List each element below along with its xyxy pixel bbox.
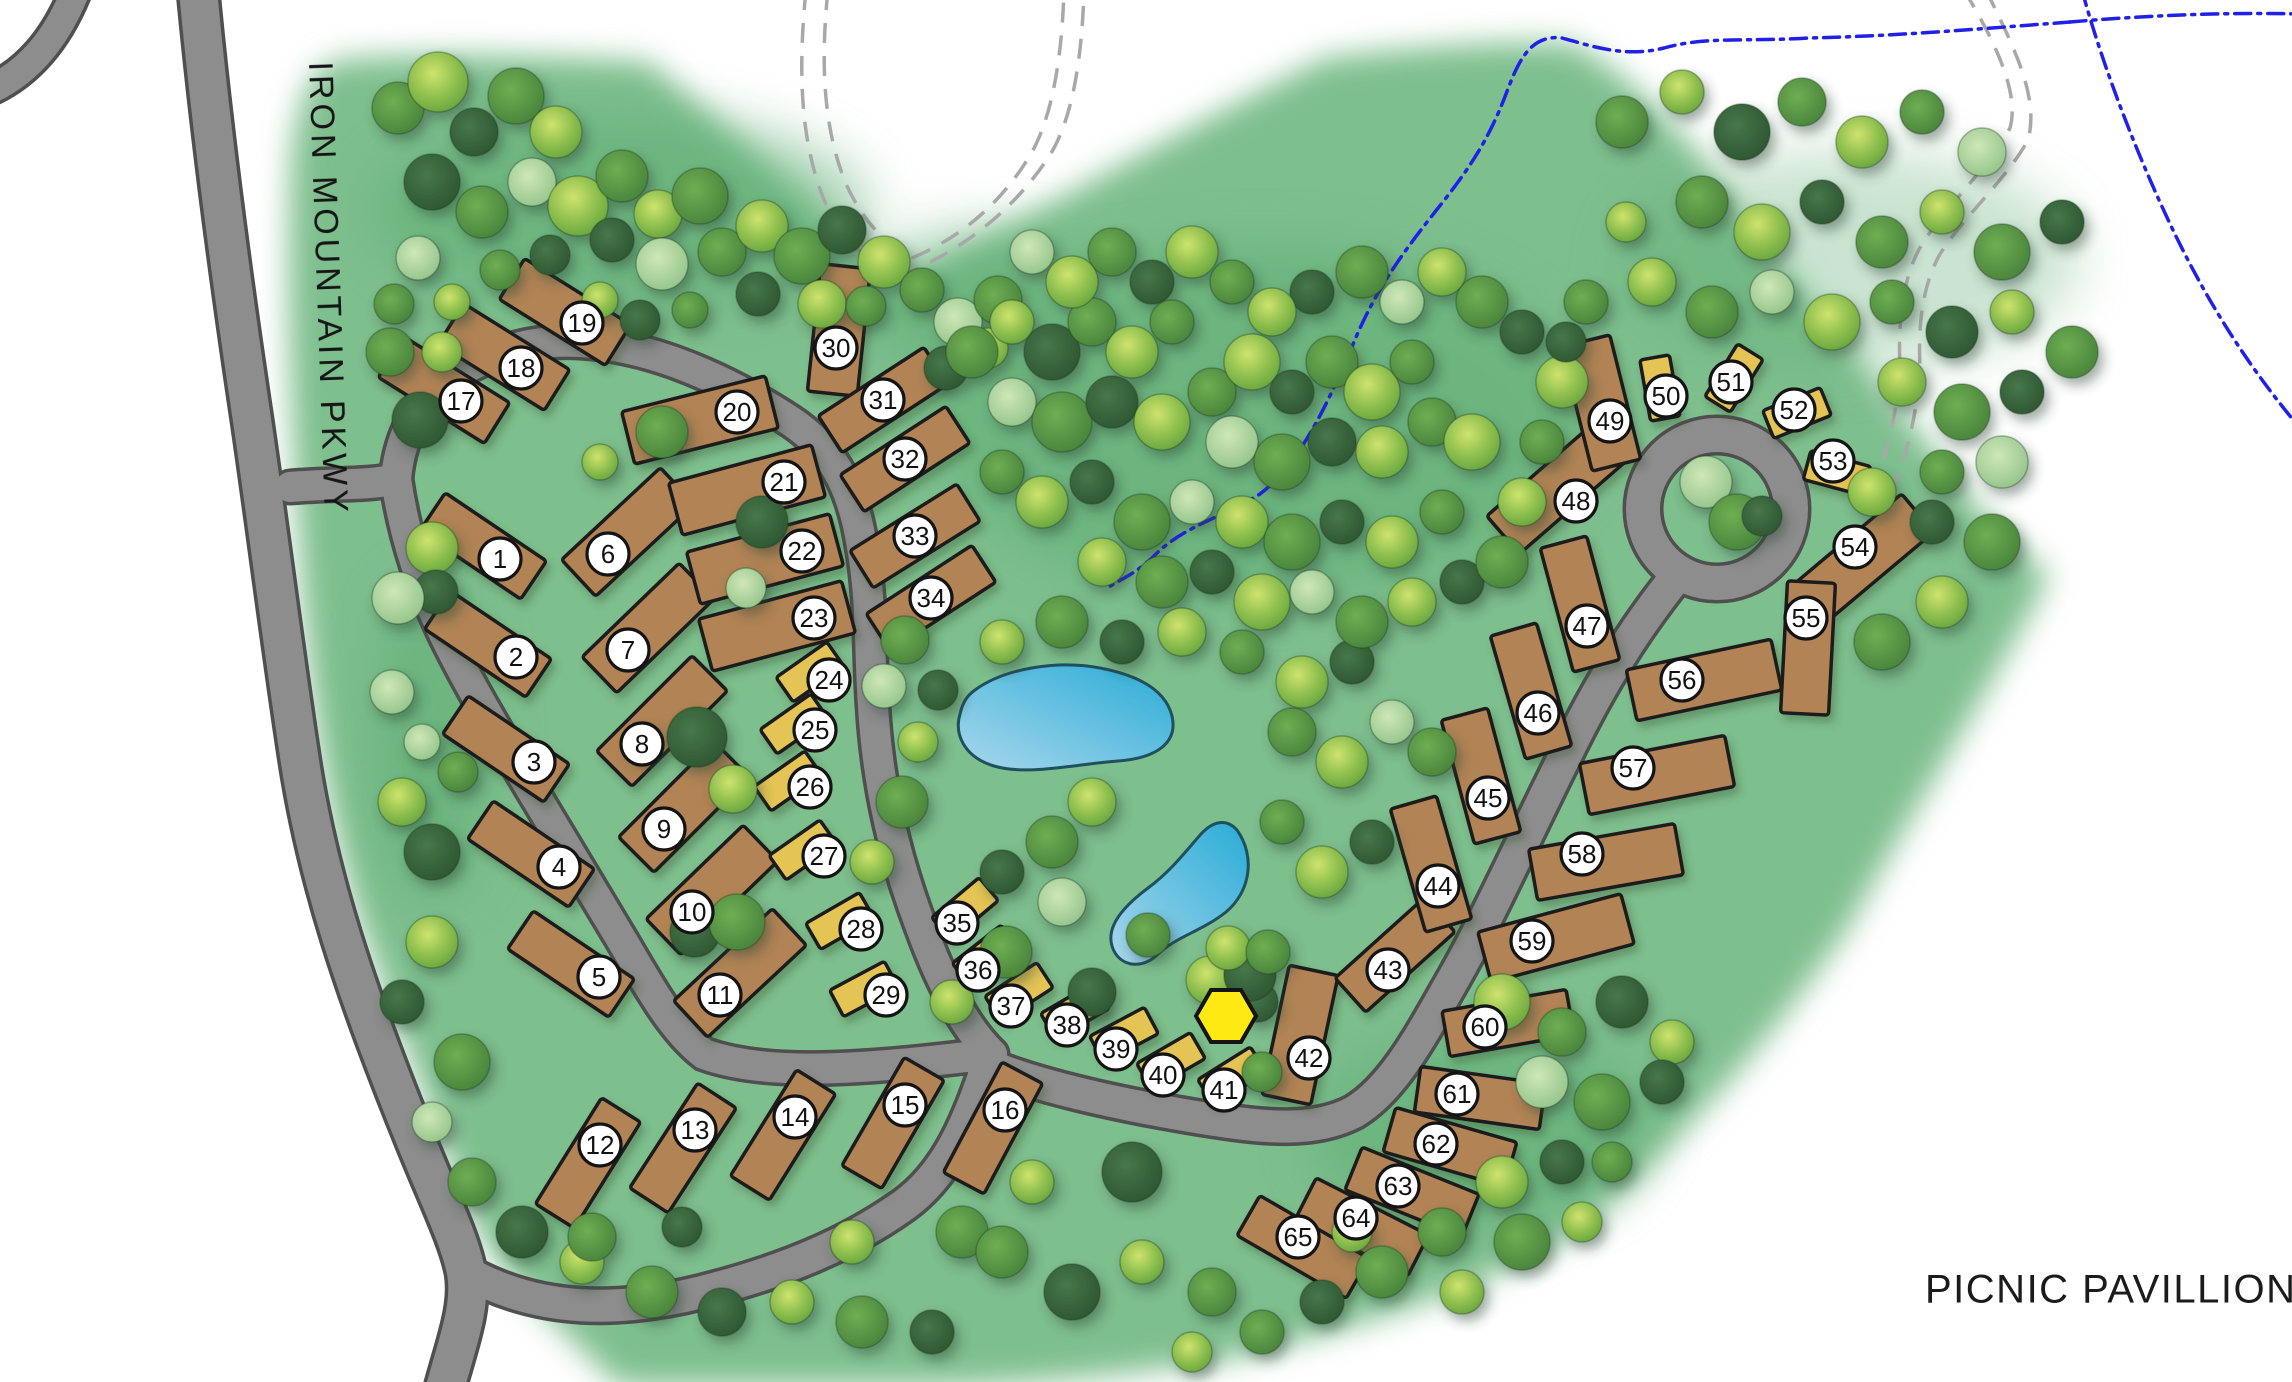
legend-label: PICNIC PAVILLION: [1925, 1267, 2292, 1311]
tree-icon: [918, 670, 958, 710]
lot-number: 52: [1780, 395, 1809, 425]
lot-number: 17: [447, 386, 476, 416]
lot-number-marker: 37: [990, 985, 1032, 1027]
tree-icon: [1366, 516, 1418, 568]
lot-number: 46: [1524, 698, 1553, 728]
lot-number: 6: [601, 539, 615, 569]
tree-icon: [1344, 364, 1400, 420]
tree-icon: [1916, 576, 1968, 628]
tree-icon: [1206, 416, 1258, 468]
tree-icon: [1106, 326, 1158, 378]
lot-number-marker: 3: [513, 741, 555, 783]
tree-icon: [406, 916, 458, 968]
tree-icon: [1320, 500, 1364, 544]
tree-icon: [1336, 596, 1388, 648]
lot-number: 24: [815, 665, 844, 695]
lot-number-marker: 7: [607, 629, 649, 671]
lot-number: 16: [991, 1095, 1020, 1125]
tree-icon: [1120, 1240, 1164, 1284]
tree-icon: [1920, 190, 1964, 234]
lot-number-marker: 28: [840, 908, 882, 950]
lot-number-marker: 42: [1288, 1037, 1330, 1079]
lot-number: 14: [781, 1102, 810, 1132]
lot-number-marker: 30: [815, 327, 857, 369]
lot-number-marker: 10: [671, 891, 713, 933]
lot-number-marker: 17: [440, 380, 482, 422]
lot-number-marker: 22: [781, 530, 823, 572]
tree-icon: [1628, 258, 1676, 306]
lot-number-marker: 8: [621, 723, 663, 765]
lot-number: 44: [1424, 871, 1453, 901]
lot-number-marker: 39: [1095, 1028, 1137, 1070]
tree-icon: [450, 108, 498, 156]
tree-icon: [448, 1158, 496, 1206]
lot-number-marker: 27: [803, 835, 845, 877]
lot-number: 20: [723, 397, 752, 427]
tree-icon: [1134, 394, 1190, 450]
tree-icon: [1126, 913, 1170, 957]
lot-number: 62: [1422, 1129, 1451, 1159]
tree-icon: [1216, 496, 1268, 548]
tree-icon: [698, 1288, 746, 1336]
tree-icon: [480, 250, 520, 290]
lot-number: 21: [770, 467, 799, 497]
lot-number-marker: 46: [1517, 692, 1559, 734]
tree-icon: [456, 186, 508, 238]
lot-number: 27: [810, 841, 839, 871]
tree-icon: [1224, 334, 1280, 390]
lot-number: 1: [493, 544, 507, 574]
lot-number-marker: 52: [1773, 389, 1815, 431]
lot-number: 49: [1596, 406, 1625, 436]
tree-icon: [709, 765, 757, 813]
tree-icon: [1380, 280, 1424, 324]
lot-number-marker: 44: [1417, 865, 1459, 907]
lot-number-marker: 31: [862, 379, 904, 421]
lot-number: 26: [796, 772, 825, 802]
lot-number-marker: 16: [984, 1089, 1026, 1131]
tree-icon: [1268, 708, 1316, 756]
tree-icon: [1444, 414, 1500, 470]
lot-number: 12: [586, 1130, 615, 1160]
lot-number: 30: [822, 333, 851, 363]
lot-number-marker: 47: [1566, 605, 1608, 647]
tree-icon: [1100, 620, 1144, 664]
tree-icon: [404, 154, 460, 210]
tree-icon: [2000, 370, 2044, 414]
lot-number-marker: 14: [774, 1096, 816, 1138]
tree-icon: [709, 894, 765, 950]
tree-icon: [1234, 574, 1290, 630]
tree-icon: [988, 378, 1036, 426]
lot-number: 34: [917, 583, 946, 613]
tree-icon: [1370, 700, 1414, 744]
tree-icon: [1856, 216, 1908, 268]
lot-number: 32: [891, 444, 920, 474]
tree-icon: [818, 206, 866, 254]
lot-number: 2: [509, 642, 523, 672]
tree-icon: [1804, 294, 1860, 350]
lot-number: 11: [707, 980, 734, 1010]
pavilion-hexagon-icon: [1196, 990, 1256, 1042]
tree-icon: [1170, 480, 1214, 524]
tree-icon: [1316, 736, 1368, 788]
tree-icon: [1010, 1160, 1054, 1204]
tree-icon: [1270, 370, 1314, 414]
tree-icon: [898, 722, 938, 762]
tree-icon: [1734, 204, 1790, 260]
lot-number-marker: 53: [1812, 440, 1854, 482]
tree-icon: [1958, 128, 2006, 176]
lot-number: 8: [635, 729, 649, 759]
tree-icon: [1650, 1020, 1694, 1064]
tree-icon: [1036, 596, 1088, 648]
lot-number: 9: [657, 814, 671, 844]
tree-icon: [1836, 116, 1888, 168]
lot-number: 58: [1568, 839, 1597, 869]
tree-icon: [1540, 1140, 1584, 1184]
lot-number: 10: [678, 897, 707, 927]
lot-number: 13: [681, 1115, 710, 1145]
tree-icon: [370, 670, 414, 714]
tree-icon: [1536, 356, 1588, 408]
lot-number: 65: [1284, 1222, 1313, 1252]
lot-number: 5: [592, 962, 606, 992]
tree-icon: [672, 292, 708, 328]
tree-icon: [1910, 500, 1954, 544]
lot-number-marker: 2: [495, 636, 537, 678]
tree-icon: [1206, 926, 1250, 970]
tree-icon: [582, 444, 618, 480]
lot-number: 22: [788, 536, 817, 566]
lot-number: 61: [1443, 1079, 1472, 1109]
lot-number-marker: 40: [1142, 1054, 1184, 1096]
tree-icon: [1418, 1208, 1466, 1256]
tree-icon: [1260, 800, 1304, 844]
tree-icon: [1476, 536, 1528, 588]
lot-number-marker: 11: [699, 974, 741, 1016]
tree-icon: [620, 300, 660, 340]
tree-icon: [1068, 778, 1116, 826]
lot-number: 41: [1210, 1075, 1239, 1105]
tree-icon: [1592, 1142, 1632, 1182]
tree-icon: [434, 284, 470, 320]
tree-icon: [1878, 358, 1926, 406]
lot-number: 19: [568, 308, 597, 338]
tree-icon: [1172, 1332, 1212, 1372]
lot-number: 54: [1841, 532, 1870, 562]
tree-icon: [850, 840, 894, 884]
lot-number-marker: 9: [643, 808, 685, 850]
tree-icon: [1640, 1060, 1684, 1104]
lot-number-marker: 19: [561, 302, 603, 344]
lot-number-marker: 65: [1277, 1216, 1319, 1258]
tree-icon: [881, 616, 929, 664]
tree-icon: [530, 106, 582, 158]
tree-icon: [1296, 846, 1348, 898]
tree-icon: [1520, 420, 1564, 464]
tree-icon: [1276, 656, 1328, 708]
lot-number-marker: 34: [910, 577, 952, 619]
tree-icon: [980, 850, 1024, 894]
tree-icon: [1964, 514, 2020, 570]
tree-icon: [1900, 90, 1944, 134]
tree-icon: [422, 332, 462, 372]
lot-number: 4: [552, 852, 566, 882]
lot-number: 29: [872, 980, 901, 1010]
tree-icon: [1136, 556, 1188, 608]
lot-number-marker: 57: [1612, 747, 1654, 789]
tree-icon: [1562, 1202, 1602, 1242]
lot-number-marker: 55: [1785, 597, 1827, 639]
lot-number: 45: [1474, 783, 1503, 813]
lot-number-marker: 38: [1046, 1004, 1088, 1046]
tree-icon: [1264, 514, 1320, 570]
site-plan-map: 1234567891011121314151617181920212223242…: [0, 0, 2292, 1382]
tree-icon: [1308, 418, 1356, 466]
lot-number: 31: [869, 385, 898, 415]
tree-icon: [1800, 180, 1844, 224]
tree-icon: [1390, 340, 1434, 384]
tree-icon: [770, 1280, 814, 1324]
lot-number-marker: 4: [538, 846, 580, 888]
tree-icon: [1676, 176, 1728, 228]
tree-icon: [1974, 224, 2030, 280]
lot-number: 50: [1652, 381, 1681, 411]
tree-icon: [380, 980, 424, 1024]
lot-number: 25: [801, 715, 830, 745]
tree-icon: [830, 1220, 874, 1264]
tree-icon: [1606, 202, 1646, 242]
lot-number-marker: 1: [479, 538, 521, 580]
lot-number: 43: [1374, 955, 1403, 985]
tree-icon: [1848, 468, 1896, 516]
tree-icon: [1248, 288, 1296, 336]
tree-icon: [404, 824, 460, 880]
lot-number: 37: [997, 991, 1026, 1021]
tree-icon: [1046, 256, 1098, 308]
tree-icon: [378, 778, 426, 826]
lot-number-marker: 32: [884, 438, 926, 480]
tree-icon: [496, 1206, 548, 1258]
tree-icon: [976, 1226, 1028, 1278]
lot-number-marker: 15: [884, 1084, 926, 1126]
lot-number-marker: 49: [1589, 400, 1631, 442]
tree-icon: [434, 1034, 490, 1090]
tree-icon: [1494, 1214, 1550, 1270]
lot-number-marker: 23: [793, 597, 835, 639]
tree-icon: [846, 286, 886, 326]
tree-icon: [1044, 1264, 1100, 1320]
tree-icon: [900, 268, 944, 312]
tree-icon: [1290, 270, 1334, 314]
lot-number-marker: 61: [1436, 1073, 1478, 1115]
tree-icon: [568, 1213, 616, 1261]
lot-number: 40: [1149, 1060, 1178, 1090]
tree-icon: [1016, 476, 1068, 528]
lot-number: 51: [1717, 367, 1746, 397]
tree-icon: [980, 620, 1024, 664]
lot-number: 36: [964, 955, 993, 985]
tree-icon: [636, 406, 688, 458]
tree-icon: [1038, 878, 1086, 926]
lot-number: 57: [1619, 753, 1648, 783]
lot-number: 60: [1471, 1012, 1500, 1042]
lot-number-marker: 25: [794, 709, 836, 751]
tree-icon: [1854, 614, 1910, 670]
tree-icon: [1026, 816, 1078, 868]
lot-number: 42: [1295, 1043, 1324, 1073]
tree-icon: [1350, 820, 1394, 864]
tree-icon: [1596, 96, 1648, 148]
tree-icon: [406, 522, 458, 574]
lot-number-marker: 21: [763, 461, 805, 503]
lot-number-marker: 36: [957, 949, 999, 991]
tree-icon: [946, 326, 998, 378]
tree-icon: [372, 572, 424, 624]
tree-icon: [590, 218, 634, 262]
tree-icon: [404, 724, 440, 760]
tree-icon: [1032, 392, 1092, 452]
tree-icon: [1476, 1156, 1528, 1208]
lot-number: 55: [1792, 603, 1821, 633]
tree-icon: [1990, 290, 2034, 334]
tree-icon: [626, 1266, 678, 1318]
lot-number-marker: 24: [808, 659, 850, 701]
tree-icon: [1150, 300, 1194, 344]
tree-icon: [1418, 248, 1466, 296]
lot-number-marker: 43: [1367, 949, 1409, 991]
tree-icon: [1574, 1074, 1630, 1130]
tree-icon: [1188, 1268, 1236, 1316]
lot-number: 56: [1668, 665, 1697, 695]
tree-icon: [1210, 260, 1254, 304]
tree-icon: [1190, 550, 1234, 594]
lot-number: 53: [1819, 446, 1848, 476]
tree-icon: [374, 284, 414, 324]
tree-icon: [408, 52, 468, 112]
tree-icon: [1114, 494, 1170, 550]
tree-icon: [876, 776, 928, 828]
tree-icon: [1498, 478, 1546, 526]
lot-number: 23: [800, 603, 829, 633]
lot-number-marker: 29: [865, 974, 907, 1016]
tree-icon: [1070, 460, 1114, 504]
tree-icon: [1336, 246, 1388, 298]
lot-number: 63: [1384, 1171, 1413, 1201]
tree-icon: [1750, 270, 1794, 314]
tree-icon: [667, 707, 727, 767]
lot-number: 59: [1518, 926, 1547, 956]
lot-number: 7: [621, 635, 635, 665]
lot-number-marker: 18: [500, 347, 542, 389]
tree-icon: [438, 752, 478, 792]
tree-icon: [1356, 426, 1408, 478]
tree-icon: [1086, 376, 1138, 428]
tree-icon: [862, 664, 906, 708]
tree-icon: [1920, 450, 1964, 494]
tree-icon: [1516, 1056, 1568, 1108]
lot-number-marker: 20: [716, 391, 758, 433]
lot-number: 38: [1053, 1010, 1082, 1040]
tree-icon: [2046, 326, 2098, 378]
lot-number: 28: [847, 914, 876, 944]
tree-icon: [1686, 286, 1738, 338]
lot-number: 64: [1342, 1203, 1371, 1233]
tree-icon: [1926, 306, 1978, 358]
tree-icon: [1408, 728, 1456, 776]
tree-icon: [836, 1296, 888, 1348]
tree-icon: [1356, 1246, 1408, 1298]
lot-number-marker: 33: [894, 515, 936, 557]
tree-icon: [1564, 280, 1608, 324]
lot-number: 39: [1102, 1034, 1131, 1064]
tree-icon: [798, 280, 846, 328]
tree-icon: [1500, 310, 1544, 354]
lot-number-marker: 62: [1415, 1123, 1457, 1165]
tree-icon: [1158, 608, 1206, 656]
tree-icon: [1130, 260, 1174, 304]
tree-icon: [1870, 280, 1914, 324]
tree-icon: [412, 1102, 452, 1142]
lot-number-marker: 58: [1561, 833, 1603, 875]
tree-icon: [1166, 226, 1218, 278]
tree-icon: [1388, 578, 1436, 626]
tree-icon: [1254, 434, 1310, 490]
tree-icon: [1440, 1270, 1484, 1314]
picnic-pavilion-marker: [1196, 990, 1256, 1042]
tree-icon: [2040, 200, 2084, 244]
lot-number-marker: 50: [1645, 375, 1687, 417]
tree-icon: [726, 568, 766, 608]
lot-number-marker: 64: [1335, 1197, 1377, 1239]
lot-number: 18: [507, 353, 536, 383]
lot-number-marker: 26: [789, 766, 831, 808]
lot-number-marker: 12: [579, 1124, 621, 1166]
lot-number-marker: 60: [1464, 1006, 1506, 1048]
tree-icon: [636, 238, 688, 290]
tree-icon: [1660, 70, 1704, 114]
tree-icon: [1714, 104, 1770, 160]
tree-icon: [662, 1207, 702, 1247]
tree-icon: [1300, 1280, 1344, 1324]
lot-number-marker: 54: [1834, 526, 1876, 568]
lot-number: 48: [1562, 486, 1591, 516]
lot-number: 15: [891, 1090, 920, 1120]
lot-number-marker: 6: [587, 533, 629, 575]
lot-number-marker: 56: [1661, 659, 1703, 701]
tree-icon: [596, 150, 648, 202]
tree-icon: [1546, 322, 1586, 362]
lot-number-marker: 5: [578, 956, 620, 998]
lot-number-marker: 41: [1203, 1069, 1245, 1111]
tree-icon: [1596, 976, 1648, 1028]
lot-number-marker: 51: [1710, 361, 1752, 403]
tree-icon: [1242, 1052, 1282, 1092]
lot-number-marker: 13: [674, 1109, 716, 1151]
lot-number-marker: 48: [1555, 480, 1597, 522]
lot-number-marker: 45: [1467, 777, 1509, 819]
tree-icon: [1078, 538, 1126, 586]
tree-icon: [1976, 436, 2028, 488]
tree-icon: [1290, 570, 1334, 614]
lot-number: 47: [1573, 611, 1602, 641]
tree-icon: [1220, 630, 1264, 674]
tree-icon: [736, 272, 780, 316]
lot-number-marker: 63: [1377, 1165, 1419, 1207]
tree-icon: [1010, 230, 1054, 274]
lot-number: 35: [943, 908, 972, 938]
